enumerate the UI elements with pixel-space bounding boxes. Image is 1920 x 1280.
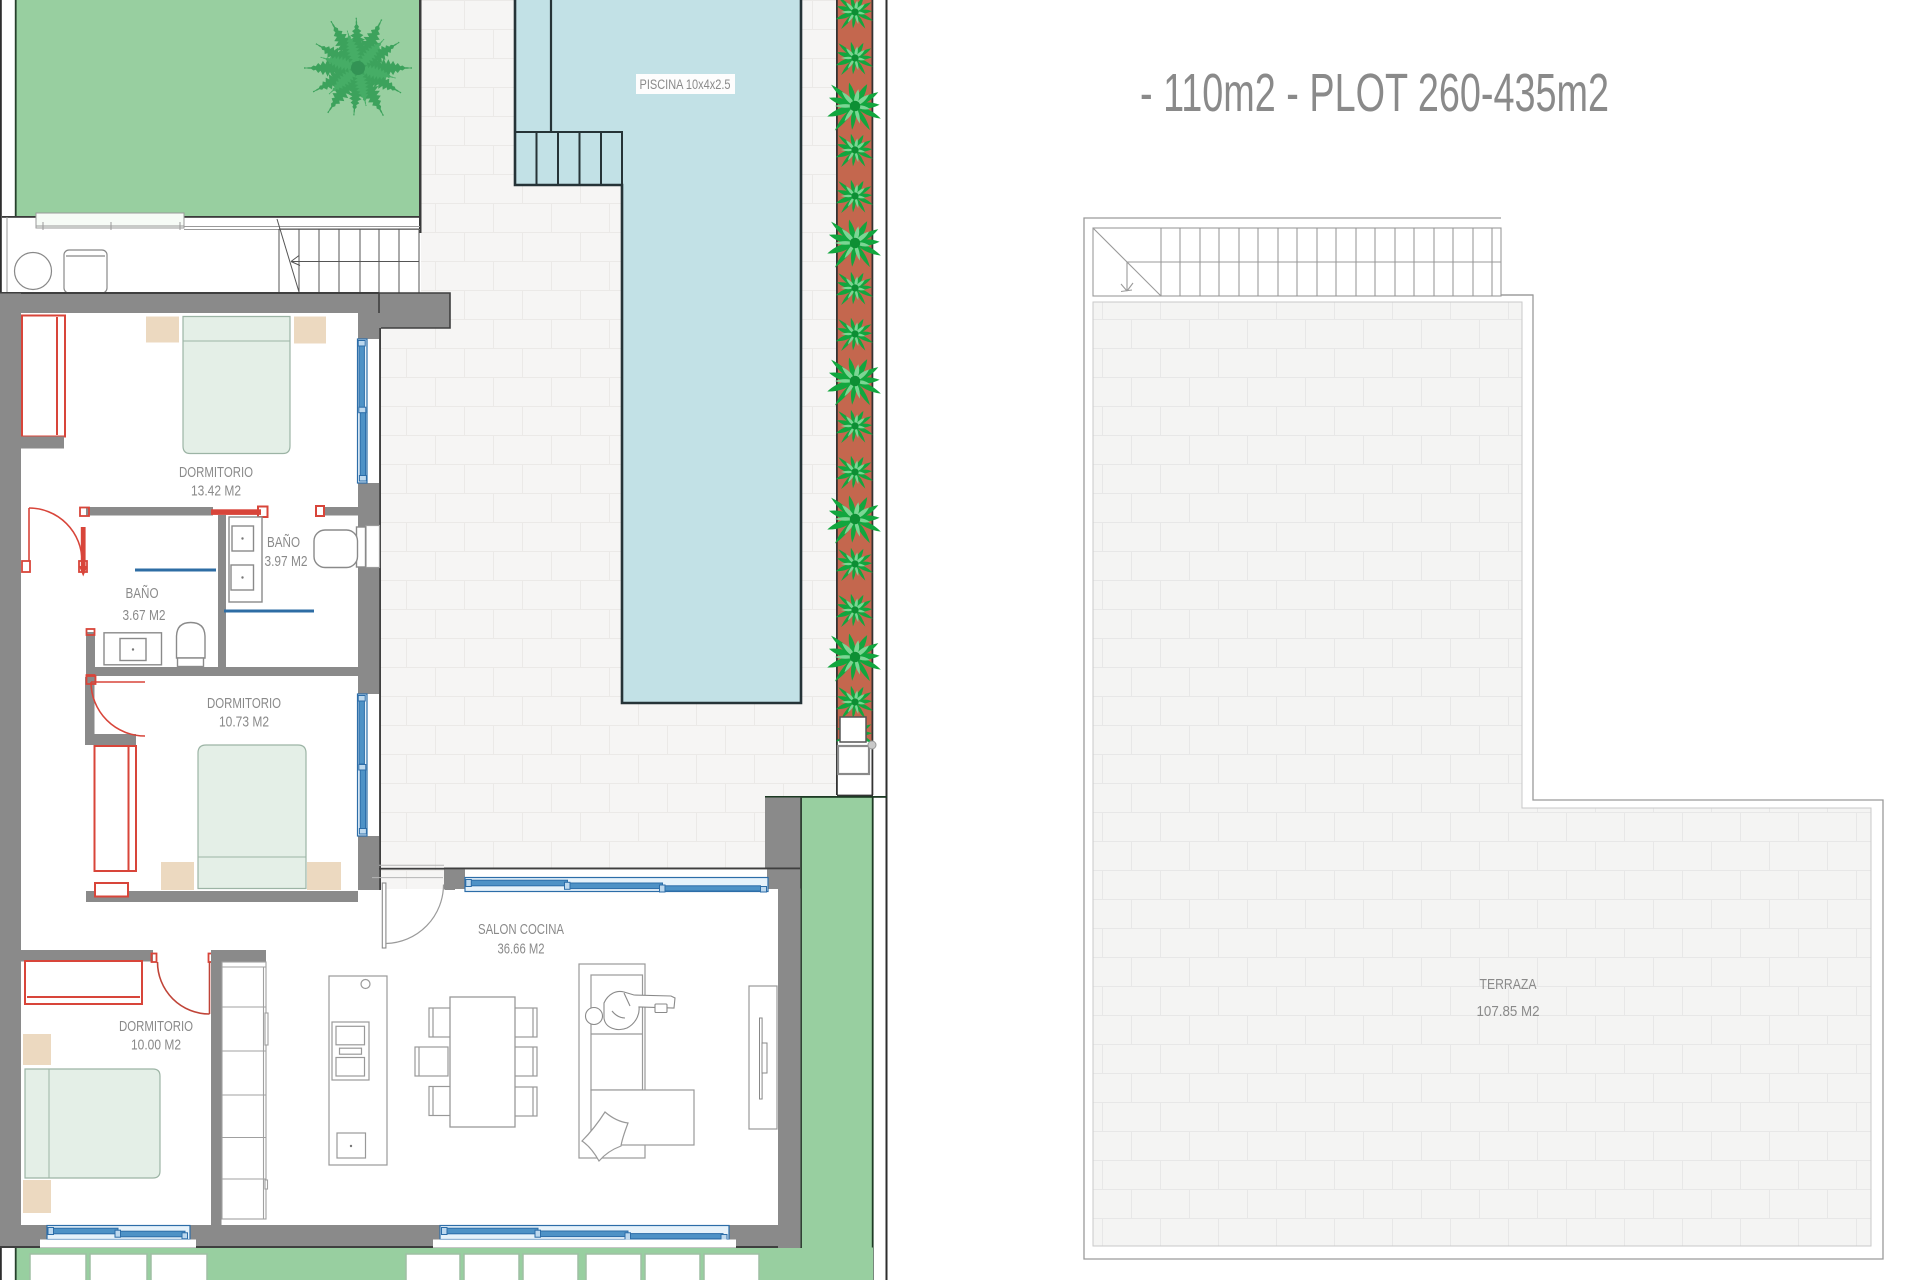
svg-text:PISCINA 10x4x2.5: PISCINA 10x4x2.5 <box>640 77 731 92</box>
svg-text:13.42 M2: 13.42 M2 <box>191 483 241 500</box>
svg-text:3.97 M2: 3.97 M2 <box>265 553 308 570</box>
svg-text:DORMITORIO: DORMITORIO <box>119 1018 193 1035</box>
svg-text:36.66 M2: 36.66 M2 <box>498 941 545 958</box>
svg-text:3.67 M2: 3.67 M2 <box>123 607 166 624</box>
svg-text:10.00 M2: 10.00 M2 <box>131 1037 181 1054</box>
svg-text:TERRAZA: TERRAZA <box>1480 976 1537 993</box>
svg-text:DORMITORIO: DORMITORIO <box>179 464 253 481</box>
svg-text:10.73 M2: 10.73 M2 <box>219 714 269 731</box>
svg-text:BAÑO: BAÑO <box>267 534 300 551</box>
svg-text:SALON COCINA: SALON COCINA <box>478 921 564 938</box>
svg-text:- 110m2 - PLOT 260-435m2: - 110m2 - PLOT 260-435m2 <box>1140 63 1609 123</box>
svg-text:107.85 M2: 107.85 M2 <box>1477 1003 1540 1020</box>
svg-text:BAÑO: BAÑO <box>126 585 159 602</box>
svg-text:DORMITORIO: DORMITORIO <box>207 695 281 712</box>
